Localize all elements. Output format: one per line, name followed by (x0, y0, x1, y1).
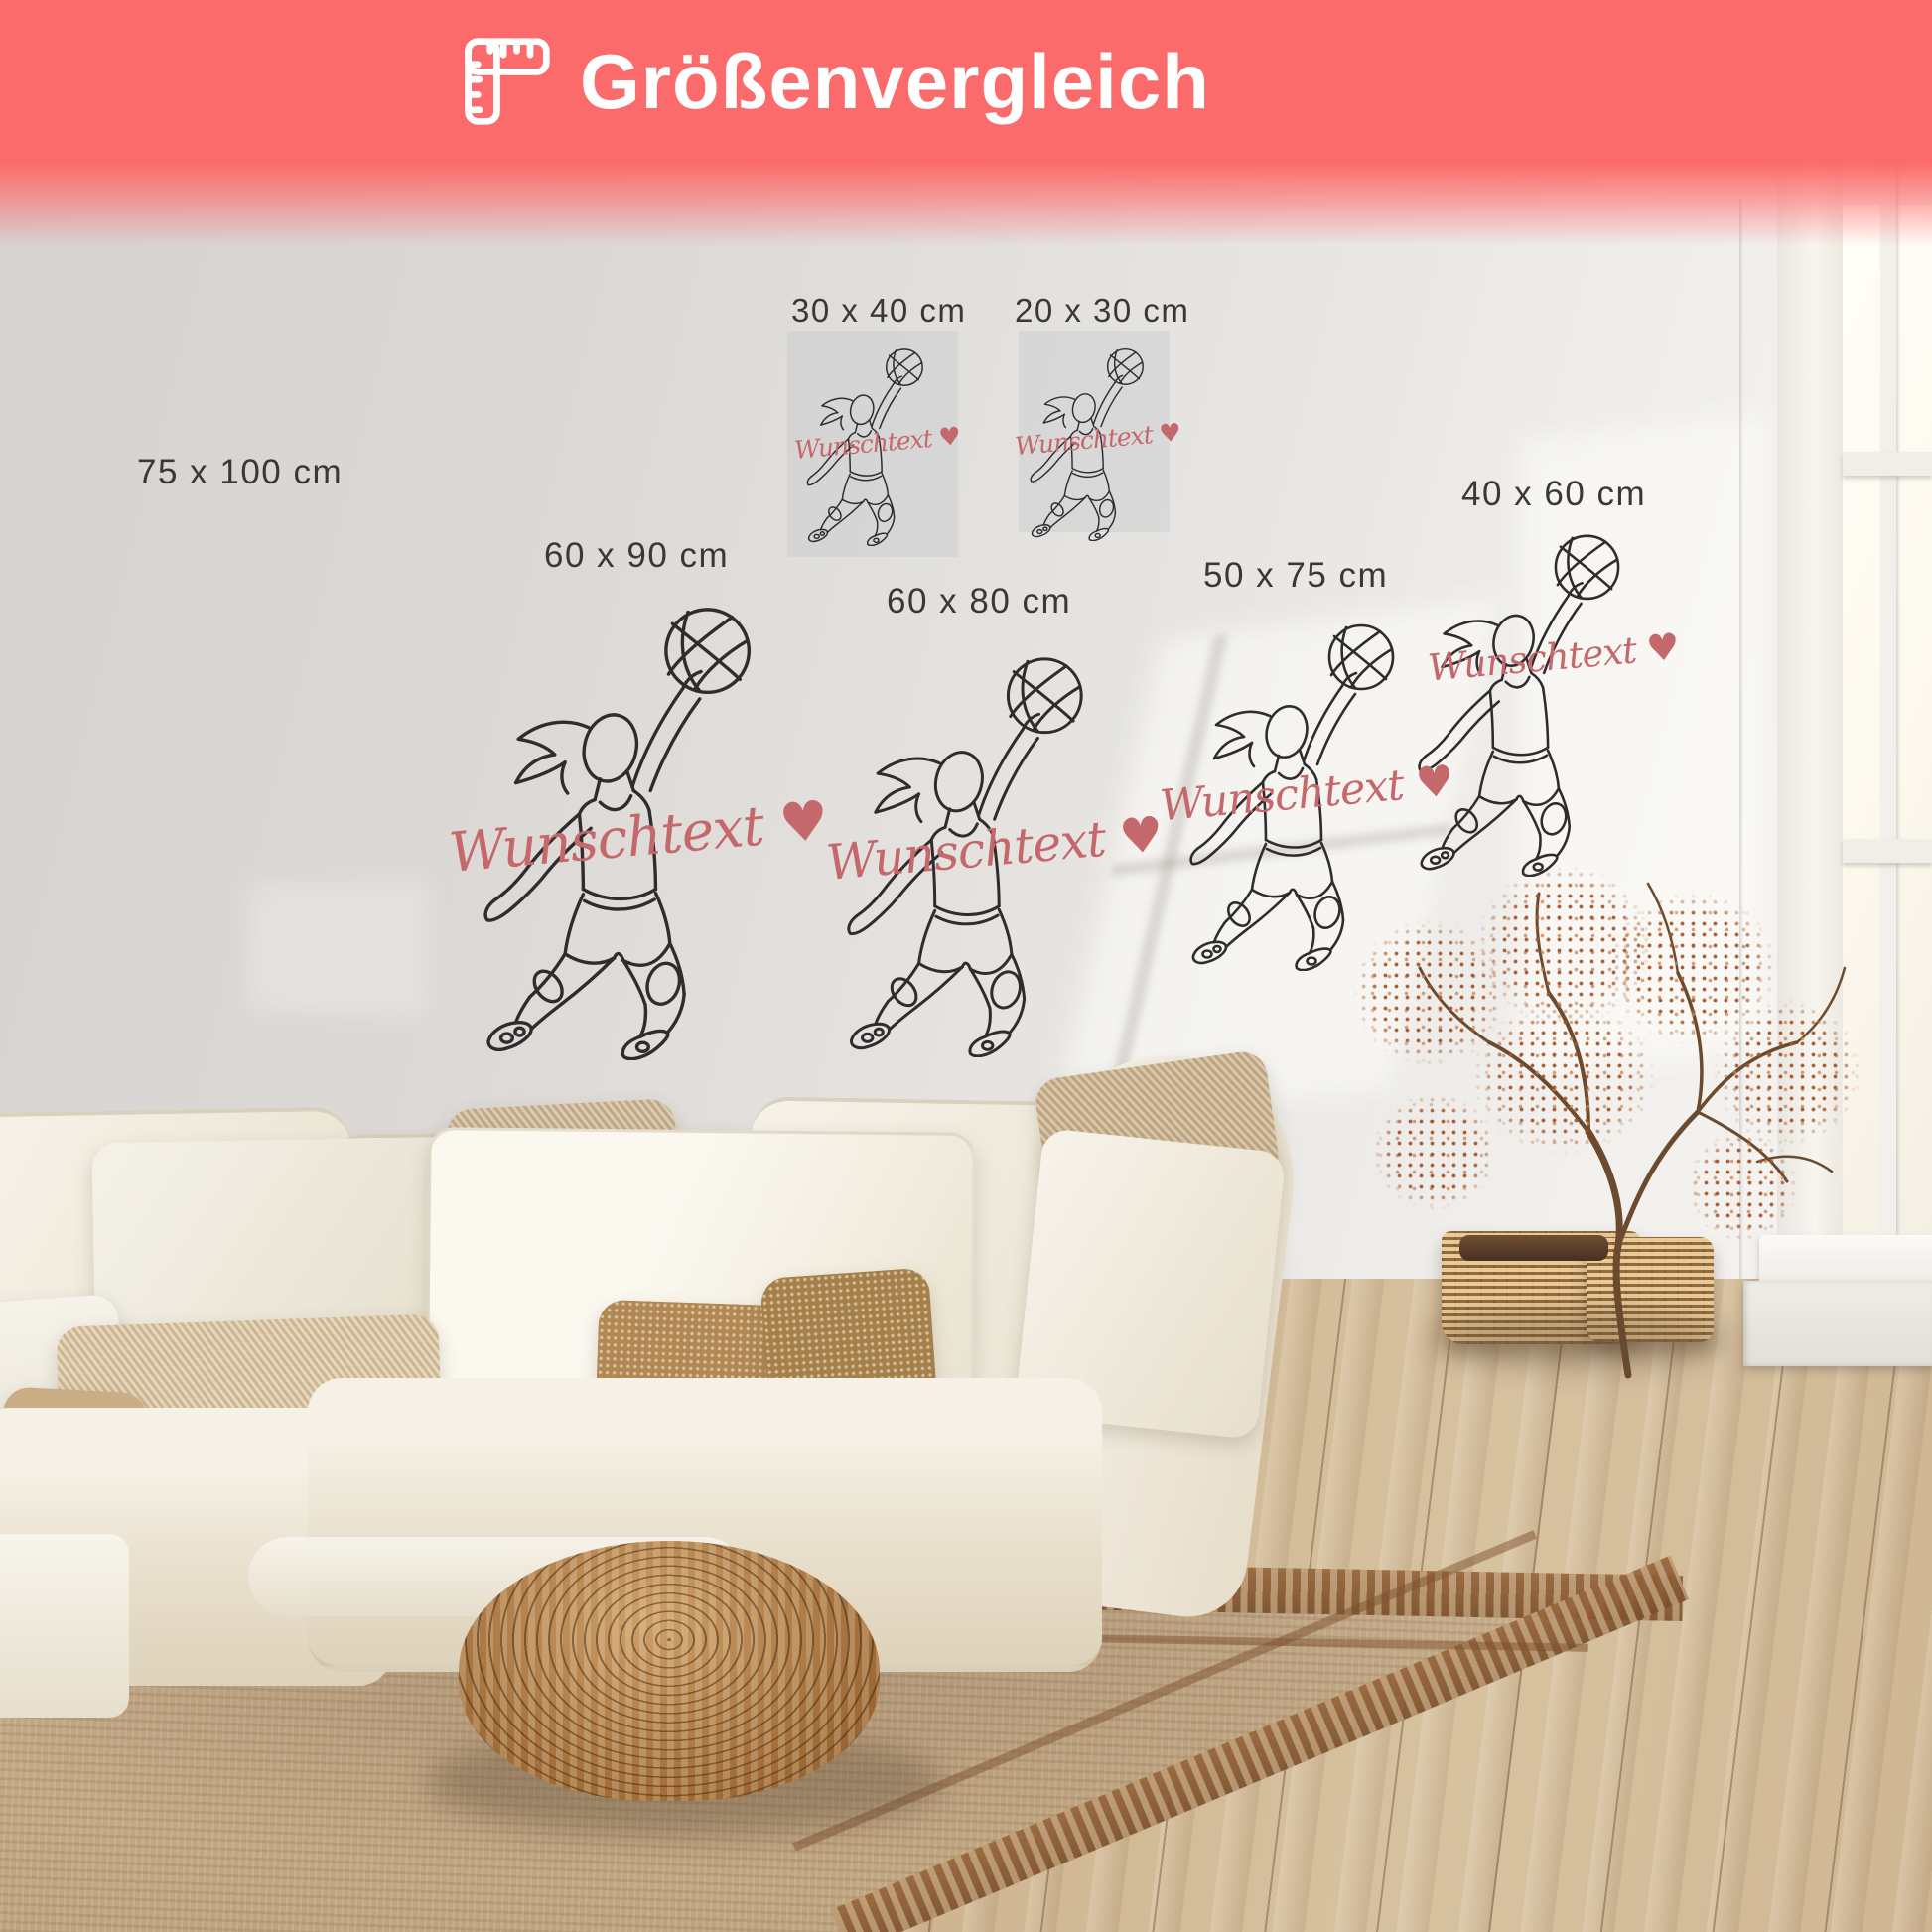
heart-glyph: ♥ (776, 788, 831, 856)
heart-glyph: ♥ (1645, 625, 1682, 671)
folding-ruler-icon (459, 34, 554, 129)
basket-shadow (1430, 1311, 1727, 1370)
basket-contents (1459, 1235, 1608, 1261)
size-label-50x75: 50 x 75 cm (1203, 556, 1388, 596)
heart-glyph: ♥ (1414, 757, 1456, 809)
heart-glyph: ♥ (1117, 806, 1166, 867)
dried-foliage (1668, 1112, 1817, 1261)
player-line-art-40x60 (1405, 524, 1630, 877)
dried-foliage (1350, 1072, 1519, 1231)
size-label-20x30: 20 x 30 cm (1015, 292, 1189, 330)
size-label-75x100: 75 x 100 cm (137, 453, 343, 492)
heart-glyph: ♥ (1158, 418, 1182, 449)
rattan-pouf (459, 1541, 880, 1801)
sunlight-patch (248, 884, 427, 1013)
banner-title-row: Größenvergleich (459, 30, 1210, 133)
heart-glyph: ♥ (937, 421, 962, 452)
size-label-60x90: 60 x 90 cm (544, 536, 729, 576)
banner-title: Größenvergleich (580, 43, 1210, 120)
sofa-skirt-fabric (0, 1534, 129, 1718)
size-label-40x60: 40 x 60 cm (1461, 475, 1646, 514)
window-bar (1843, 452, 1932, 476)
size-label-60x80: 60 x 80 cm (887, 582, 1071, 621)
size-label-30x40: 30 x 40 cm (791, 292, 966, 330)
size-comparison-mockup: 75 x 100 cm 30 x 40 cm 20 x 30 cm 60 x 9… (0, 0, 1932, 1932)
